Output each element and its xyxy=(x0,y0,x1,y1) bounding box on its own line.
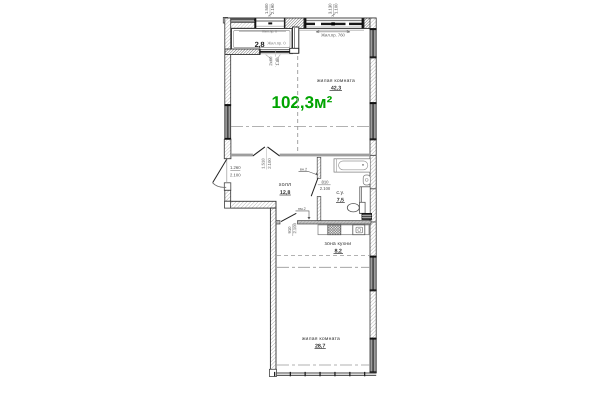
svg-text:1.100: 1.100 xyxy=(334,3,339,14)
svg-text:Жил.пр. 0: Жил.пр. 0 xyxy=(267,40,286,45)
svg-text:пм.2: пм.2 xyxy=(298,207,306,211)
svg-text:Жил.пр. 0: Жил.пр. 0 xyxy=(262,30,277,34)
svg-text:810: 810 xyxy=(322,180,330,185)
svg-text:102,3м²: 102,3м² xyxy=(272,93,333,112)
svg-text:2.190: 2.190 xyxy=(270,3,275,14)
svg-text:2.100: 2.100 xyxy=(230,172,241,177)
svg-text:2,8: 2,8 xyxy=(255,40,265,49)
svg-text:2.100: 2.100 xyxy=(267,158,272,169)
svg-text:холл: холл xyxy=(279,182,292,188)
svg-text:1.260: 1.260 xyxy=(230,165,241,170)
svg-text:зона кухни: зона кухни xyxy=(325,241,352,247)
svg-text:2x60: 2x60 xyxy=(268,56,273,66)
svg-text:2.100: 2.100 xyxy=(320,186,331,191)
svg-text:с.у.: с.у. xyxy=(336,190,344,196)
svg-text:1.510: 1.510 xyxy=(260,158,265,169)
svg-text:вн.2: вн.2 xyxy=(300,167,307,171)
svg-text:1.80: 1.80 xyxy=(275,57,280,66)
svg-text:жилая комната: жилая комната xyxy=(317,78,355,84)
svg-text:2.100: 2.100 xyxy=(292,222,297,233)
svg-text:3.130: 3.130 xyxy=(328,3,333,14)
svg-text:1.500: 1.500 xyxy=(264,3,269,14)
svg-text:жилая комната: жилая комната xyxy=(302,336,340,342)
svg-text:Жил.пр. 760: Жил.пр. 760 xyxy=(321,33,345,38)
